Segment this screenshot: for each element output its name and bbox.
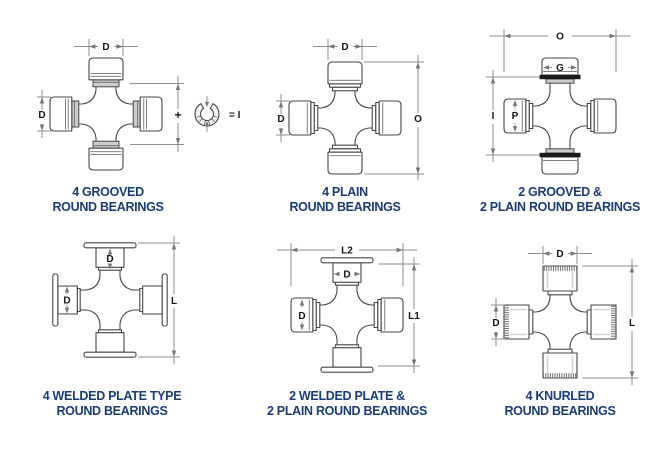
dim-label-d-top: D (343, 270, 350, 281)
caption-2-grooved-2-plain: 2 GROOVED & 2 PLAIN ROUND BEARINGS (460, 185, 660, 214)
dim-label-d-top: D (341, 42, 348, 53)
diagram-4-plain: D D O (252, 12, 450, 184)
cross-body (76, 266, 144, 334)
bearing-cap-top (89, 58, 123, 87)
caption-line: 2 GROOVED & (460, 185, 660, 200)
dim-label-i: I (492, 111, 495, 122)
bearing-cap-right (587, 305, 616, 339)
dim-label-l2: L2 (341, 246, 353, 257)
bearing-cap-right (372, 101, 401, 135)
bearing-cap-bottom (543, 349, 577, 378)
caption-line: 4 KNURLED (460, 389, 660, 404)
dim-label-o: O (414, 114, 422, 125)
dimension-d-left: D (276, 94, 290, 142)
bearing-cap-bottom (328, 145, 362, 174)
caption-line: 2 WELDED PLATE & (247, 389, 447, 404)
bearing-cap-bottom (540, 149, 581, 174)
dim-label-l1: L1 (408, 311, 420, 322)
bearing-cap-left (50, 97, 79, 131)
dim-label-d-left: D (63, 296, 70, 307)
diagram-2-grooved-2-plain: O G I P (448, 12, 670, 184)
caption-line: 2 PLAIN ROUND BEARINGS (247, 404, 447, 419)
caption-2-welded-2-plain: 2 WELDED PLATE & 2 PLAIN ROUND BEARINGS (247, 389, 447, 418)
caption-line: 2 PLAIN ROUND BEARINGS (460, 200, 660, 215)
dimension-d-left: D (491, 298, 505, 346)
snap-ring-thickness-arrows (205, 96, 209, 132)
bearing-cap-bottom (89, 141, 123, 170)
u-joint-cross (504, 58, 616, 174)
caption-4-plain: 4 PLAIN ROUND BEARINGS (245, 185, 445, 214)
dim-label-d-top: D (106, 254, 113, 265)
bearing-cap-top (543, 266, 577, 295)
cross-body (526, 288, 594, 356)
diagram-2-welded-2-plain: L2 D D L1 (252, 230, 450, 402)
u-joint-cross (504, 266, 616, 378)
cross-body (311, 84, 379, 152)
bearing-cap-bottom (321, 345, 373, 372)
caption-line: 4 PLAIN (245, 185, 445, 200)
bearing-cap-left (289, 101, 318, 135)
dim-label-d-top: D (556, 249, 563, 260)
bearing-cap-top (328, 62, 362, 91)
bearing-cap-bottom (84, 330, 136, 357)
dim-label-d-left: D (277, 114, 284, 125)
cross-body (313, 281, 381, 349)
dim-label-g: G (556, 63, 564, 74)
dim-label-p: P (512, 111, 519, 122)
caption-line: 4 WELDED PLATE TYPE (12, 389, 212, 404)
dim-label-d-left: D (298, 311, 305, 322)
cross-body (526, 82, 594, 150)
bearing-cap-left (504, 99, 533, 133)
caption-line: ROUND BEARINGS (12, 404, 212, 419)
u-joint-cross (289, 62, 401, 174)
dim-label-plus: + (174, 108, 181, 122)
caption-4-grooved: 4 GROOVED ROUND BEARINGS (8, 185, 208, 214)
u-joint-cross (50, 58, 162, 170)
caption-line: ROUND BEARINGS (245, 200, 445, 215)
dimension-d-top: D (74, 39, 138, 56)
dim-label-equals-i: = I (229, 110, 241, 121)
caption-line: ROUND BEARINGS (460, 404, 660, 419)
dimension-d-top: D (528, 246, 592, 264)
dimension-d-top: D (313, 39, 377, 60)
diagram-4-grooved: D D + = I (18, 12, 263, 184)
dimension-d-left: D (37, 90, 51, 138)
dim-label-d-left: D (38, 110, 45, 121)
dim-label-d-left: D (492, 318, 499, 329)
dim-label-l: L (171, 296, 177, 307)
bearing-cap-left (504, 305, 533, 339)
caption-4-knurled: 4 KNURLED ROUND BEARINGS (460, 389, 660, 418)
diagram-4-welded-plate: D D L (8, 230, 238, 402)
dim-label-o: O (556, 32, 564, 43)
diagram-4-knurled: D D L (448, 230, 670, 402)
dim-label-d-top: D (102, 42, 109, 53)
dim-label-l: L (629, 318, 635, 329)
caption-4-welded-plate: 4 WELDED PLATE TYPE ROUND BEARINGS (12, 389, 212, 418)
bearing-cap-right (587, 99, 616, 133)
bearing-types-diagram-page: D D + = I 4 GROOVED ROUND BEARINGS (0, 0, 670, 450)
caption-line: 4 GROOVED (8, 185, 208, 200)
bearing-cap-right (133, 97, 162, 131)
bearing-cap-right (374, 298, 403, 332)
caption-line: ROUND BEARINGS (8, 200, 208, 215)
bearing-cap-right (140, 274, 167, 326)
cross-body (72, 80, 140, 148)
